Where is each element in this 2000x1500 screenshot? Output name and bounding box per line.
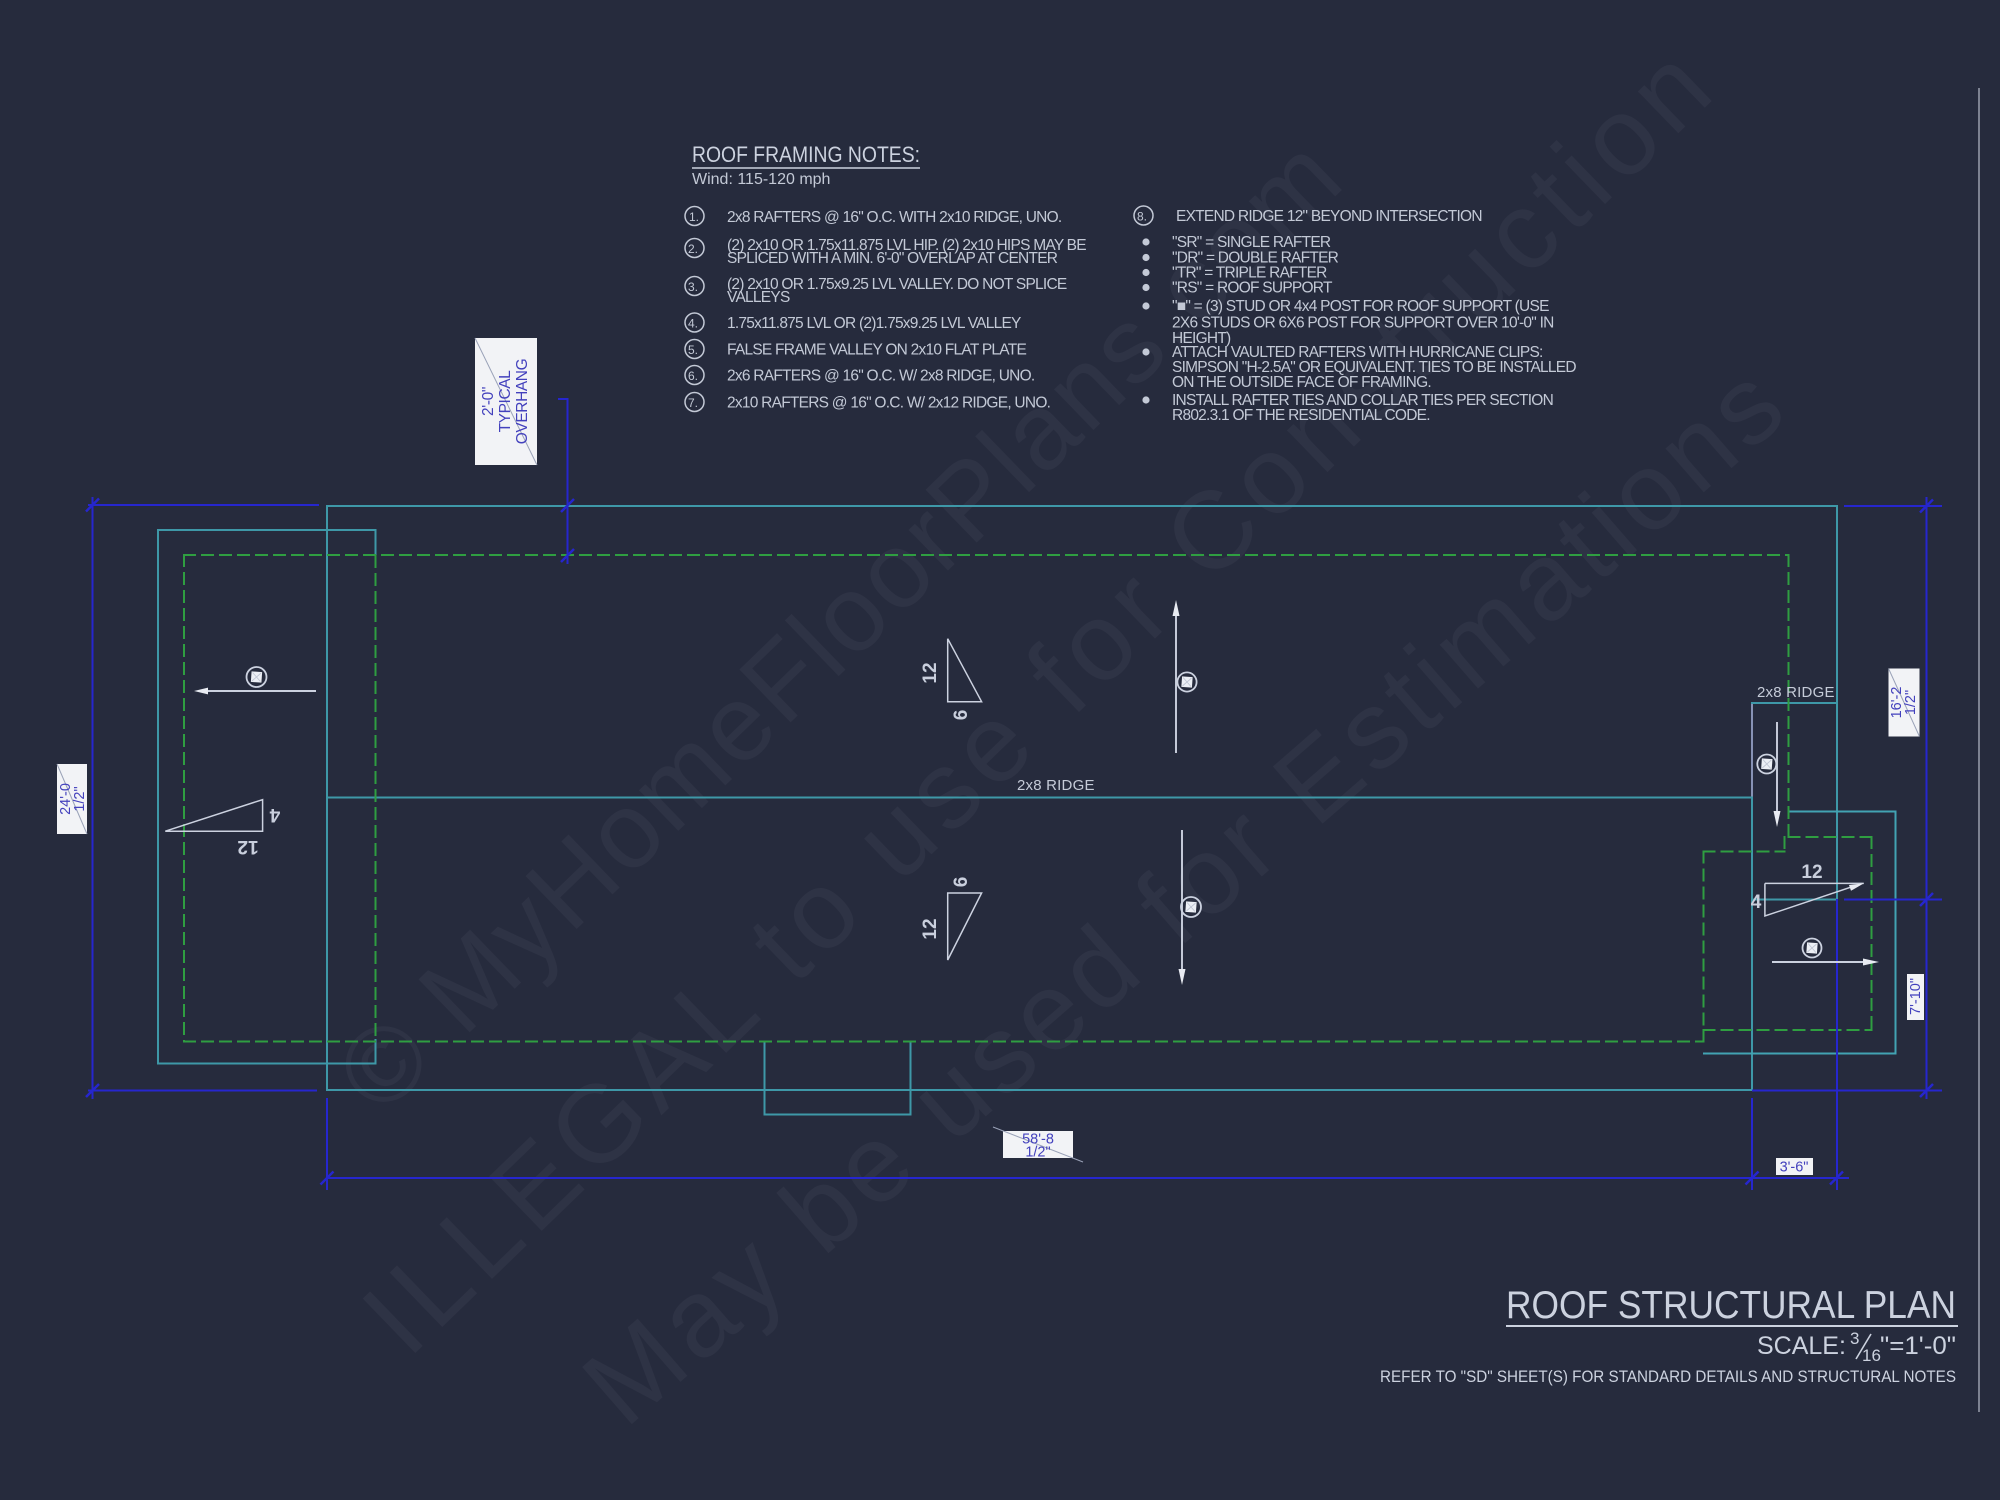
- svg-text:2X6 STUDS OR 6X6 POST FOR SUPP: 2X6 STUDS OR 6X6 POST FOR SUPPORT OVER 1…: [1172, 315, 1554, 332]
- svg-text:2'-0": 2'-0": [480, 387, 497, 416]
- svg-text:12: 12: [920, 918, 941, 939]
- svg-text:EXTEND RIDGE 12" BEYOND INTERS: EXTEND RIDGE 12" BEYOND INTERSECTION: [1176, 208, 1482, 225]
- svg-text:1/2": 1/2": [72, 786, 88, 811]
- svg-text:12: 12: [1801, 862, 1822, 883]
- svg-text:3: 3: [1850, 1329, 1859, 1348]
- svg-text:4: 4: [1751, 892, 1762, 913]
- svg-text:12: 12: [920, 662, 941, 683]
- svg-text:16: 16: [1862, 1346, 1881, 1365]
- svg-text:6: 6: [951, 877, 972, 888]
- svg-text:ROOF FRAMING NOTES:: ROOF FRAMING NOTES:: [692, 142, 920, 167]
- svg-text:"■" = (3) STUD OR 4x4 POST FOR: "■" = (3) STUD OR 4x4 POST FOR ROOF SUPP…: [1172, 298, 1549, 315]
- svg-text:6: 6: [951, 710, 972, 721]
- svg-text:SCALE:: SCALE:: [1757, 1332, 1846, 1360]
- svg-text:1.75x11.875 LVL OR (2)1.75x9.2: 1.75x11.875 LVL OR (2)1.75x9.25 LVL VALL…: [727, 315, 1021, 332]
- svg-text:3'-6": 3'-6": [1780, 1160, 1809, 1176]
- svg-text:4: 4: [269, 804, 280, 825]
- svg-text:2x8 RIDGE: 2x8 RIDGE: [1757, 684, 1835, 701]
- svg-text:3.: 3.: [688, 280, 698, 294]
- svg-text:12: 12: [237, 836, 258, 857]
- svg-text:1/2": 1/2": [1903, 690, 1919, 715]
- svg-text:FALSE FRAME VALLEY ON 2x10 FLA: FALSE FRAME VALLEY ON 2x10 FLAT PLATE: [727, 342, 1026, 359]
- svg-text:5.: 5.: [688, 343, 698, 357]
- svg-text:2x8 RAFTERS @ 16" O.C. WITH 2x: 2x8 RAFTERS @ 16" O.C. WITH 2x10 RIDGE, …: [727, 209, 1061, 226]
- svg-text:1/2": 1/2": [1025, 1145, 1050, 1161]
- svg-text:8.: 8.: [1137, 210, 1147, 224]
- svg-text:VALLEYS: VALLEYS: [727, 289, 790, 306]
- svg-text:"=1'-0": "=1'-0": [1880, 1332, 1956, 1360]
- svg-text:REFER TO "SD" SHEET(S) FOR STA: REFER TO "SD" SHEET(S) FOR STANDARD DETA…: [1380, 1368, 1956, 1386]
- svg-text:1.: 1.: [689, 210, 699, 224]
- svg-text:SPLICED WITH A MIN. 6'-0" OVER: SPLICED WITH A MIN. 6'-0" OVERLAP AT CEN…: [727, 250, 1058, 267]
- svg-text:Wind: 115-120 mph: Wind: 115-120 mph: [692, 171, 830, 188]
- svg-text:7.: 7.: [688, 396, 698, 410]
- svg-text:"RS" = ROOF SUPPORT: "RS" = ROOF SUPPORT: [1172, 280, 1333, 297]
- svg-text:6.: 6.: [688, 369, 698, 383]
- svg-text:OVERHANG: OVERHANG: [514, 359, 531, 445]
- svg-text:TYPICAL: TYPICAL: [497, 370, 514, 433]
- svg-text:2x10 RAFTERS @ 16" O.C. W/ 2x1: 2x10 RAFTERS @ 16" O.C. W/ 2x12 RIDGE, U…: [727, 395, 1050, 412]
- svg-text:7'-10": 7'-10": [1908, 978, 1924, 1015]
- svg-text:2x6 RAFTERS @ 16" O.C. W/ 2x8: 2x6 RAFTERS @ 16" O.C. W/ 2x8 RIDGE, UNO…: [727, 368, 1034, 385]
- svg-text:R802.3.1 OF THE RESIDENTIAL C: R802.3.1 OF THE RESIDENTIAL CODE.: [1172, 407, 1430, 424]
- svg-text:2.: 2.: [688, 242, 698, 256]
- svg-text:ROOF STRUCTURAL PLAN: ROOF STRUCTURAL PLAN: [1506, 1284, 1956, 1327]
- svg-text:4.: 4.: [688, 317, 698, 331]
- svg-text:2x8 RIDGE: 2x8 RIDGE: [1017, 777, 1095, 794]
- svg-text:ON THE OUTSIDE FACE OF FRAMING: ON THE OUTSIDE FACE OF FRAMING.: [1172, 374, 1431, 391]
- svg-text:"SR" = SINGLE RAFTER: "SR" = SINGLE RAFTER: [1172, 234, 1331, 251]
